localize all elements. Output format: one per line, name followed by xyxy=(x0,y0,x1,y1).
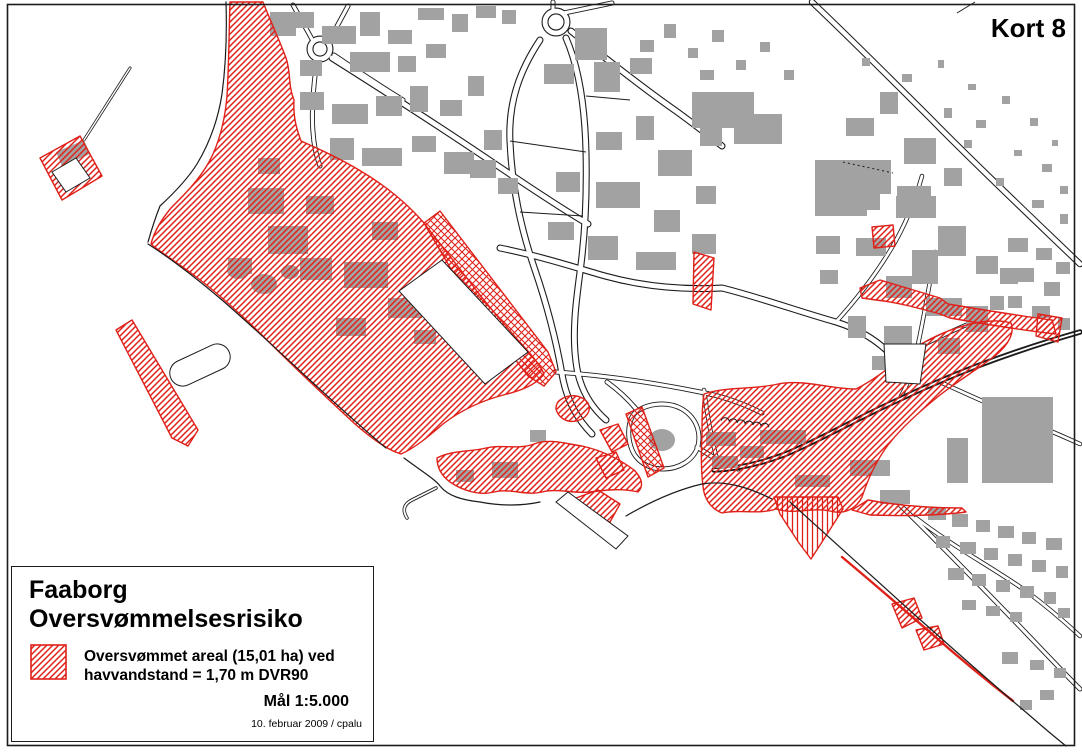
map-sheet: Kort 8 Faaborg Oversvømmelsesrisiko Over… xyxy=(0,0,1082,754)
flood-pier-marina xyxy=(774,497,843,559)
legend-title-line2: Oversvømmelsesrisiko xyxy=(29,605,303,634)
cutout-railway-zone xyxy=(884,344,926,384)
flood-blobs-coast xyxy=(892,598,944,650)
legend-item-line2: havvandstand = 1,70 m DVR90 xyxy=(84,666,335,685)
legend-item-line1: Oversvømmet areal (15,01 ha) ved xyxy=(84,647,335,666)
scale-label: Mål 1:5.000 xyxy=(264,693,349,711)
sheet-label: Kort 8 xyxy=(991,13,1066,44)
flood-arm-northeast xyxy=(860,280,1056,334)
flood-hatch-swatch-icon xyxy=(30,644,67,680)
legend-title-line1: Faaborg xyxy=(29,576,128,605)
legend-item-label: Oversvømmet areal (15,01 ha) ved havvand… xyxy=(84,647,335,685)
legend-box: Faaborg Oversvømmelsesrisiko Oversvømmet… xyxy=(11,566,374,742)
flood-patch-street xyxy=(693,252,714,310)
date-credit-label: 10. februar 2009 / cpalu xyxy=(251,718,362,730)
flood-blob-east-edge xyxy=(1036,314,1062,342)
building-large-block xyxy=(692,92,938,284)
flood-zone-railway xyxy=(701,321,1012,513)
basin-hook xyxy=(166,340,235,391)
flood-patch-building xyxy=(872,225,895,248)
